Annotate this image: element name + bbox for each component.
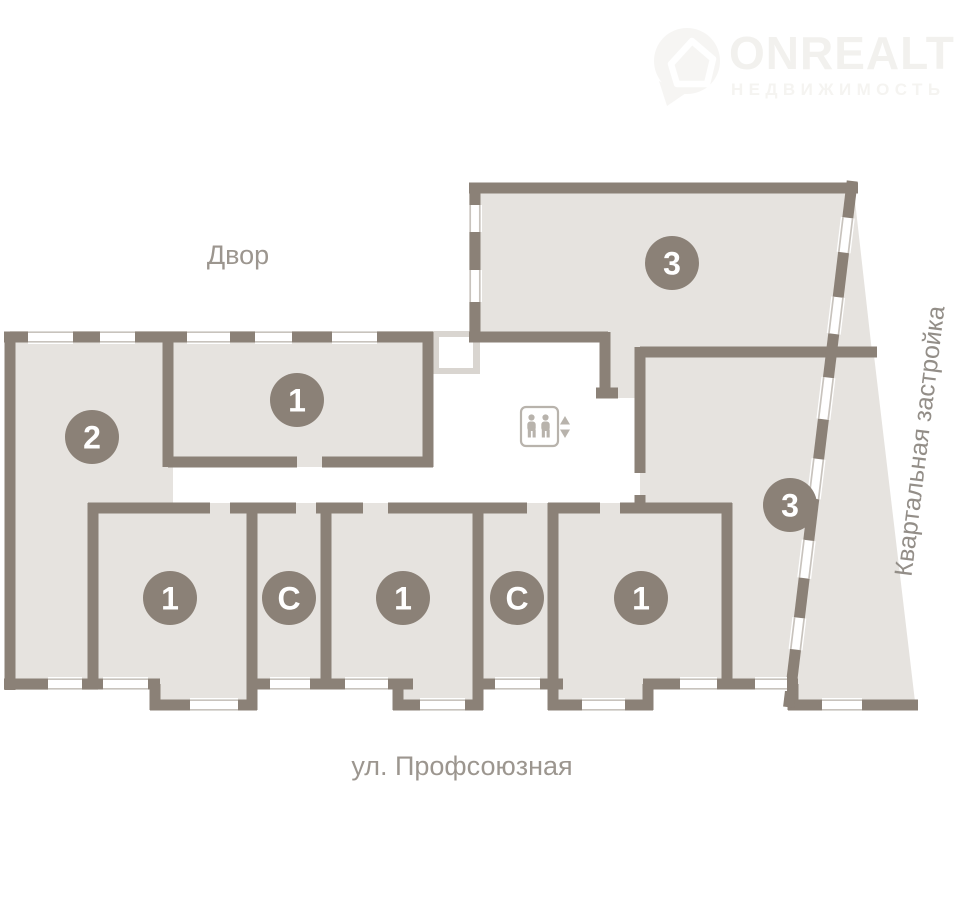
- window: [822, 698, 862, 712]
- window: [255, 330, 292, 344]
- elevator-up-icon: [560, 416, 570, 425]
- unit-badge[interactable]: 1: [376, 571, 430, 625]
- unit-badge-label: 1: [632, 581, 650, 617]
- elevator-down-icon: [560, 430, 570, 439]
- window: [582, 698, 625, 712]
- window: [332, 330, 377, 344]
- window: [468, 205, 482, 232]
- unit-badge[interactable]: 1: [614, 571, 668, 625]
- unit-badge-label: 3: [781, 488, 799, 524]
- unit-badge-label: С: [277, 581, 300, 617]
- window: [420, 698, 465, 712]
- window: [103, 677, 148, 691]
- floor-plan-page: 2 1 3 3 1 С 1 С 1 Двор ул. Профсоюзная К…: [0, 0, 960, 910]
- window: [345, 677, 388, 691]
- unit-badge[interactable]: 1: [143, 571, 197, 625]
- unit-badge[interactable]: 3: [645, 236, 699, 290]
- unit-badge-label: 3: [663, 246, 681, 282]
- street-label: ул. Профсоюзная: [351, 751, 572, 781]
- window: [270, 677, 310, 691]
- window: [190, 698, 238, 712]
- unit-badge-label: 1: [161, 581, 179, 617]
- unit-badge[interactable]: 2: [65, 410, 119, 464]
- unit-badge-label: 1: [288, 383, 306, 419]
- person-icon: [527, 414, 535, 437]
- window: [468, 270, 482, 302]
- unit-badge-label: 1: [394, 581, 412, 617]
- unit-badge-label: С: [505, 581, 528, 617]
- onrealt-logo: ONREALT НЕДВИЖИМОСТЬ: [654, 27, 955, 106]
- unit-badge[interactable]: С: [490, 571, 544, 625]
- window: [48, 677, 82, 691]
- window: [495, 677, 540, 691]
- window: [187, 330, 230, 344]
- logo-brand-text: ONREALT: [729, 27, 955, 79]
- elevator-icon: [521, 407, 570, 446]
- window: [28, 330, 73, 344]
- quarter-label: Квартальная застройка: [890, 304, 951, 578]
- apartment-areas[interactable]: [10, 183, 916, 710]
- window: [100, 330, 135, 344]
- floor-plan: 2 1 3 3 1 С 1 С 1 Двор ул. Профсоюзная К…: [0, 0, 960, 910]
- unit-badge[interactable]: 3: [763, 478, 817, 532]
- unit-badge[interactable]: 1: [270, 373, 324, 427]
- window: [755, 677, 787, 691]
- unit-badge-label: 2: [83, 420, 101, 456]
- window: [680, 677, 717, 691]
- courtyard-label: Двор: [207, 240, 269, 270]
- logo-subtitle-text: НЕДВИЖИМОСТЬ: [731, 80, 945, 99]
- unit-badge[interactable]: С: [262, 571, 316, 625]
- person-icon: [541, 414, 549, 437]
